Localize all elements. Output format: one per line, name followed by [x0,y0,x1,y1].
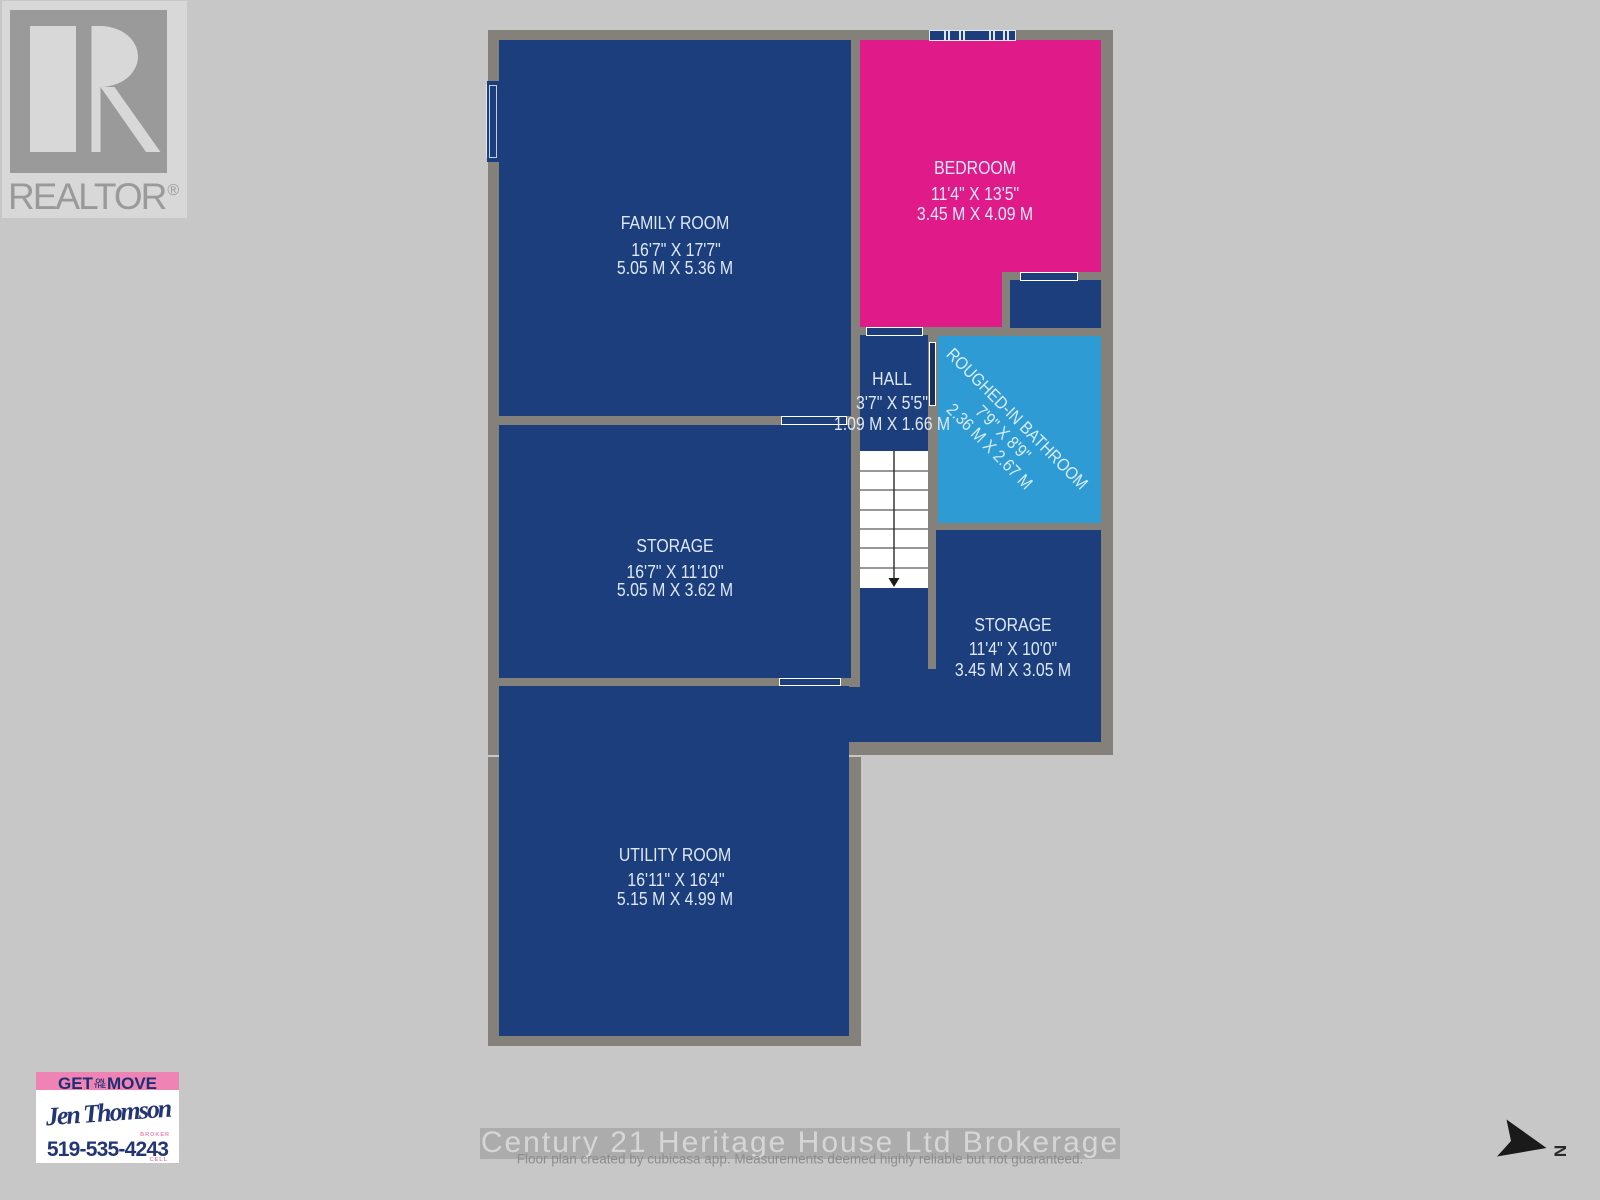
svg-text:N: N [1551,1145,1570,1157]
